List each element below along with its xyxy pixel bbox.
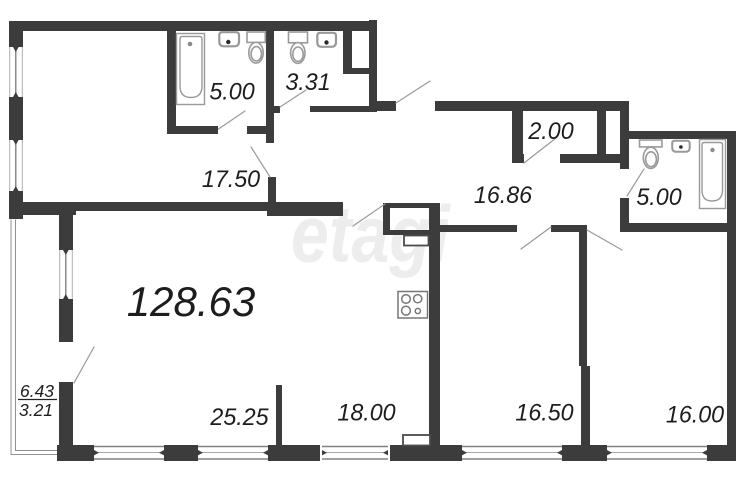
svg-text:3.31: 3.31 bbox=[285, 70, 330, 96]
svg-text:5.00: 5.00 bbox=[209, 79, 254, 105]
svg-text:16.86: 16.86 bbox=[474, 183, 533, 209]
svg-text:128.63: 128.63 bbox=[127, 278, 255, 325]
svg-text:17.50: 17.50 bbox=[202, 167, 260, 193]
svg-text:5.00: 5.00 bbox=[636, 185, 681, 211]
svg-text:16.00: 16.00 bbox=[666, 402, 724, 428]
svg-text:25.25: 25.25 bbox=[209, 405, 269, 431]
svg-text:2.00: 2.00 bbox=[527, 119, 573, 145]
svg-text:18.00: 18.00 bbox=[337, 400, 395, 426]
svg-text:3.21: 3.21 bbox=[19, 400, 53, 420]
svg-text:16.50: 16.50 bbox=[515, 400, 573, 426]
svg-text:6.43: 6.43 bbox=[20, 381, 54, 401]
